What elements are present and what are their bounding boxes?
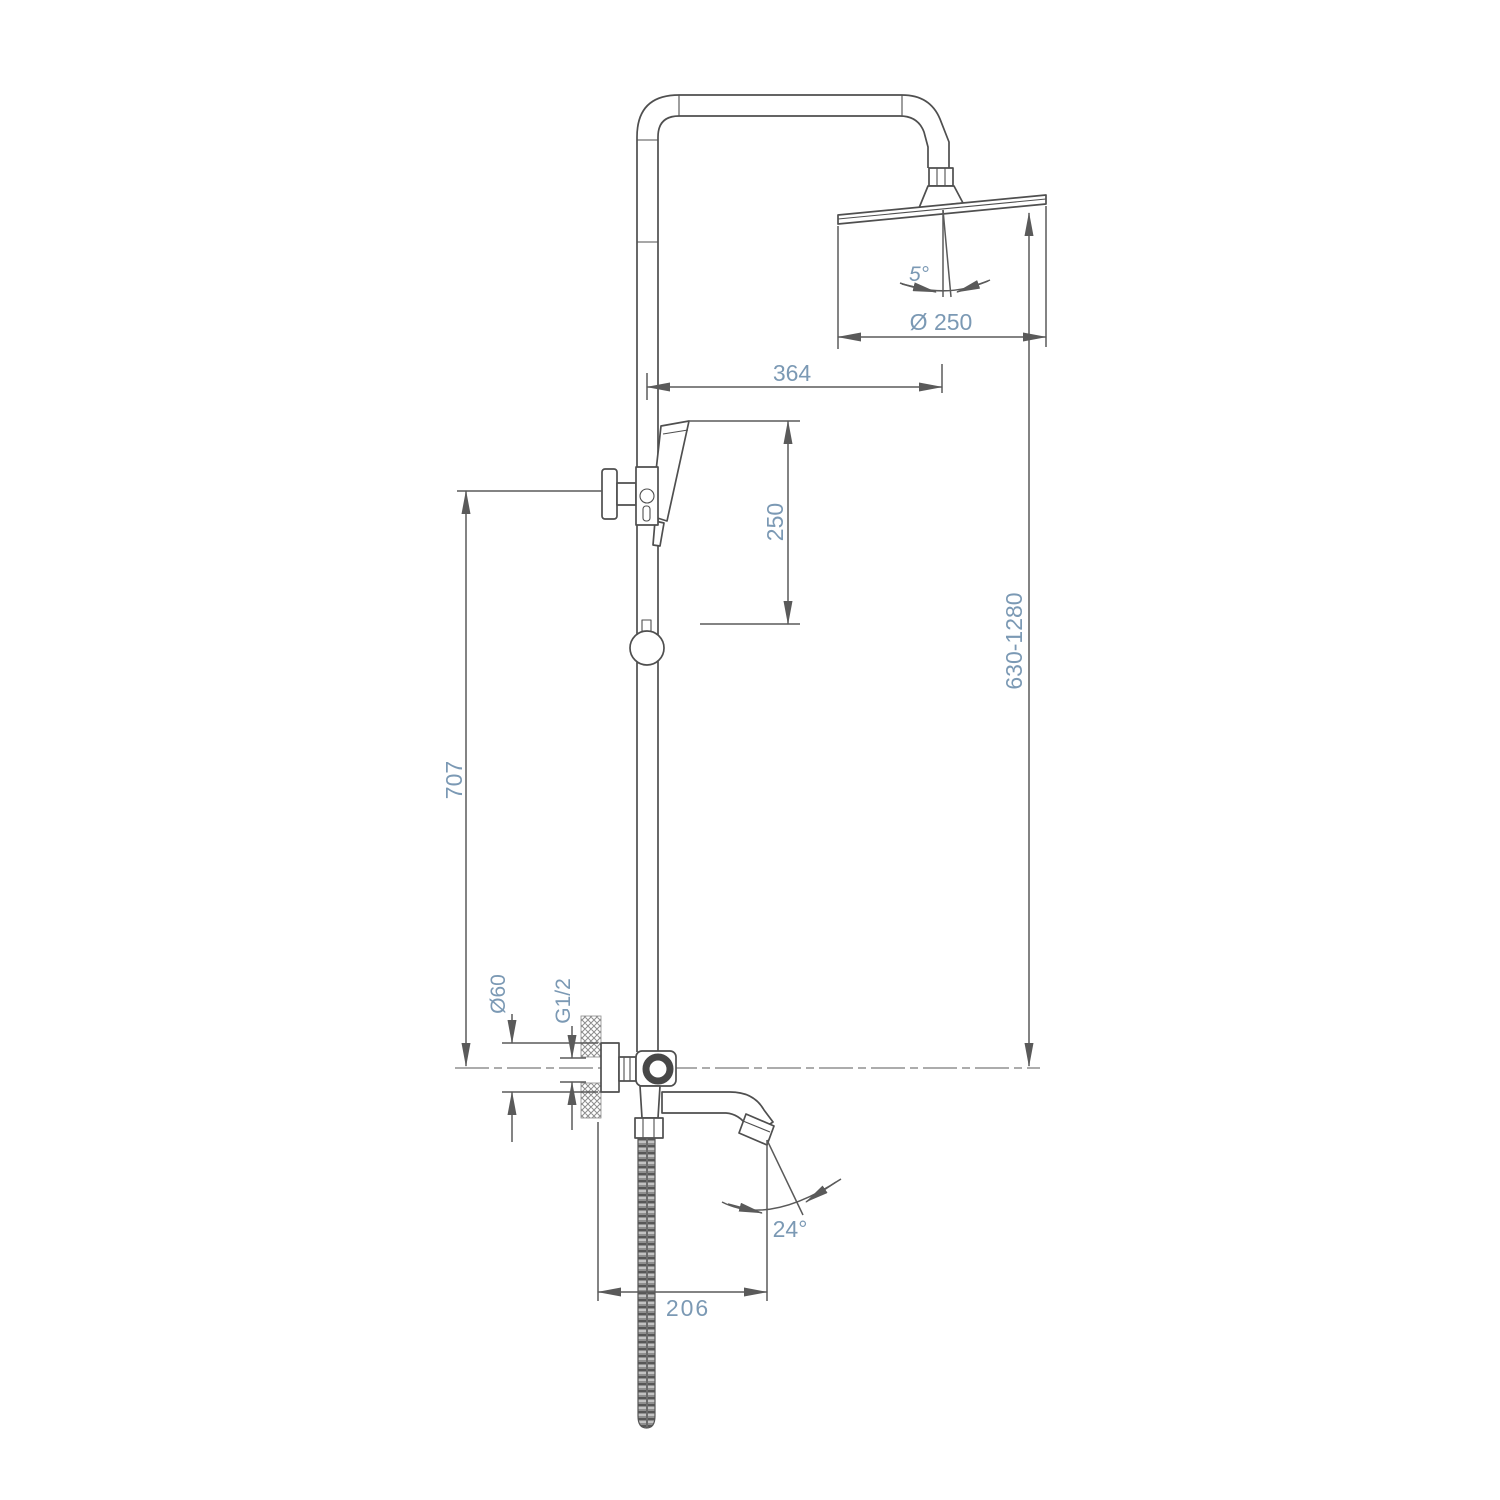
head-connector-nut: [929, 168, 953, 186]
head-diameter-label: Ø 250: [910, 309, 973, 335]
slider-stop-tab: [642, 620, 651, 631]
head-angle-annotation: 5°: [900, 210, 990, 297]
head-diameter-dimension: Ø 250: [838, 206, 1046, 349]
handshower-travel-label: 250: [762, 503, 788, 541]
wall-section: [581, 1016, 601, 1118]
spout-angle-label: 24°: [773, 1216, 808, 1242]
thread-size-label: G1/2: [552, 978, 575, 1024]
shower-system-technical-drawing: 5° Ø 250 364 630-1280 250: [0, 0, 1500, 1500]
bracket-stem: [617, 483, 636, 505]
height-range-label: 630-1280: [1001, 592, 1027, 689]
arm-offset-dimension: 364: [647, 360, 942, 400]
bracket-height-dimension: 707: [441, 491, 602, 1066]
mixer-valve: [601, 1043, 676, 1138]
valve-handle: [646, 1057, 670, 1081]
bracket-knob: [602, 469, 617, 519]
bracket-height-label: 707: [441, 761, 467, 799]
shower-hose: [638, 1138, 655, 1428]
handshower-travel-dimension: 250: [689, 421, 800, 624]
threaded-inlet: [619, 1057, 636, 1081]
bracket-pivot: [640, 489, 654, 503]
technical-drawing-page: 5° Ø 250 364 630-1280 250: [0, 0, 1500, 1500]
bracket-slot: [643, 506, 650, 521]
tub-spout: [662, 1092, 774, 1145]
shower-head: [838, 168, 1046, 224]
spout-reach-dimension: 206: [598, 1122, 767, 1321]
slider-stop: [630, 631, 664, 665]
spout-angle-dimension: 24°: [722, 1140, 841, 1242]
wall-escutcheon: [601, 1043, 619, 1092]
height-range-dimension: 630-1280: [1001, 213, 1029, 1066]
flange-diameter-label: Ø60: [487, 974, 510, 1014]
hose-nut: [635, 1118, 663, 1138]
arm-offset-label: 364: [773, 360, 812, 386]
hand-shower: [602, 421, 689, 665]
head-angle-label: 5°: [909, 263, 929, 286]
valve-lower-taper: [640, 1086, 660, 1118]
spout-reach-label: 206: [666, 1295, 710, 1321]
shower-column-pipe: [637, 95, 949, 1052]
